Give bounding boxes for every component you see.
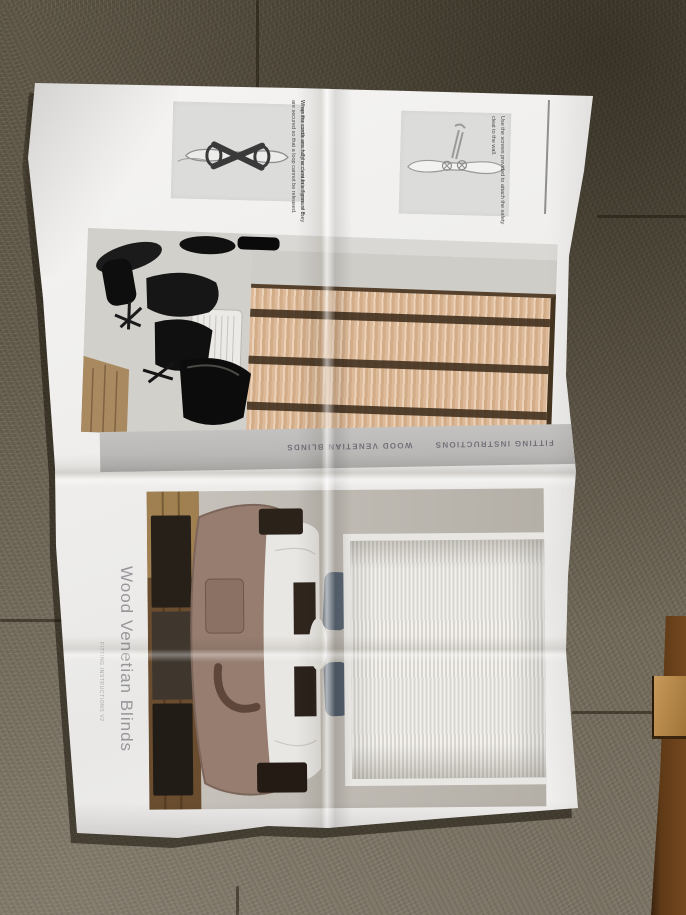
bedroom-details: [147, 490, 365, 810]
cover-edition-label: FITTING INSTRUCTIONS V2: [98, 642, 104, 762]
strip-text: FITTING INSTRUCTIONS WOOD VENETIAN BLIND…: [286, 438, 554, 452]
carpet-seam-right-lower: [572, 711, 660, 714]
carpet-seam-bottom: [236, 886, 239, 915]
instruction-step3-text: Use the screws provided to attach the sa…: [488, 116, 506, 226]
strip-product-label: WOOD VENETIAN BLINDS: [286, 441, 413, 452]
carpet-seam-top: [256, 0, 259, 88]
printed-rule-line: [544, 100, 550, 214]
cover-photo: [147, 488, 547, 809]
diagram-box-figure8: [171, 101, 303, 201]
strip-fitting-label: FITTING INSTRUCTIONS: [435, 438, 554, 449]
photo-scene: Wrap the cords around the cleat in a fig…: [0, 0, 686, 915]
carpet-seam-right-upper: [597, 215, 686, 218]
leaflet-paper: Wrap the cords around the cleat in a fig…: [28, 76, 600, 852]
room-photo-details: [81, 228, 558, 448]
cover-title: Wood Venetian Blinds: [116, 566, 136, 761]
white-venetian-blind-photo: [343, 532, 546, 786]
instruction-step2-text: When the cords are fully accumulated ens…: [288, 100, 306, 230]
wood-furniture-leg: [652, 676, 686, 739]
title-strip: FITTING INSTRUCTIONS WOOD VENETIAN BLIND…: [100, 424, 579, 472]
cleat-figure8-drawing: [171, 101, 303, 201]
blind-shading: [350, 539, 546, 779]
room-photo: [81, 228, 558, 448]
